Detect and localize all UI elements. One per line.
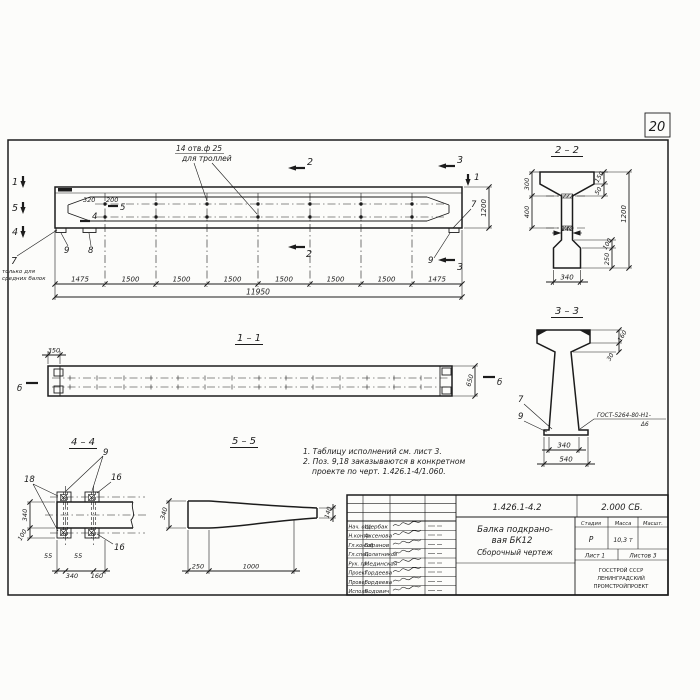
section-5-5-title: 5 – 5: [232, 436, 256, 447]
dim-300: 300: [523, 178, 531, 190]
pos9-label: 9: [64, 246, 69, 256]
svg-text:1500: 1500: [327, 276, 345, 284]
section-2-2-title: 2 – 2: [555, 145, 579, 156]
dim-340: 340: [557, 442, 571, 450]
section-3-3: 3 – 3 160 30 7 9 ГОСТ-5264-80-Н1- Δ6 340…: [518, 306, 666, 467]
notes: 1. Таблицу исполнений см. лист 3. 2. Поз…: [303, 447, 465, 476]
dim-50: 50: [594, 186, 604, 196]
svg-text:Щербак: Щербак: [365, 524, 389, 530]
pos9-label: 9: [518, 412, 523, 422]
svg-text:1475: 1475: [428, 276, 446, 284]
doc-number: 1.426.1-4.2: [492, 503, 541, 513]
svg-text:б: б: [497, 378, 502, 388]
trolley-holes: [103, 202, 413, 218]
svg-text:Баранов: Баранов: [365, 543, 390, 549]
svg-text:2: 2: [307, 157, 313, 168]
svg-text:Аксенова: Аксенова: [364, 534, 393, 540]
pos16-top-label: 16: [111, 473, 122, 483]
doc-code: 2.000 СБ.: [601, 503, 643, 513]
note-line2: 2. Поз. 9,18 заказываются в конкретном: [303, 457, 465, 466]
organization: ГОССТРОЙ СССР ЛЕНИНГРАДСКИЙ ПРОМСТРОЙПРО…: [594, 567, 650, 590]
dim-140: 140: [561, 225, 573, 233]
drawing-title-line3: Сборочный чертеж: [477, 548, 553, 557]
svg-text:Бодович: Бодович: [365, 589, 390, 595]
holes-note-line1: 14 отв.ф 25: [176, 144, 222, 153]
svg-text:1500: 1500: [173, 276, 191, 284]
stage-value: Р: [589, 535, 594, 544]
pos7-right-label: 7: [471, 200, 477, 210]
dim-55b: 55: [74, 552, 82, 560]
dim-height: 1200: [464, 184, 492, 230]
svg-text:Полатников: Полатников: [365, 552, 398, 558]
dim-540: 540: [559, 456, 573, 464]
svg-text:1500: 1500: [122, 276, 140, 284]
drawing-title-line2: вая БК12: [492, 536, 533, 546]
svg-text:1500: 1500: [224, 276, 242, 284]
cut-mark-1-right: 1: [465, 173, 479, 186]
svg-text:Гордеева: Гордеева: [365, 580, 393, 586]
svg-text:5: 5: [120, 203, 125, 213]
elevation-view: 14 отв.ф 25 для троллей 2 2 3 3 1 1: [2, 144, 492, 300]
svg-text:1500: 1500: [378, 276, 396, 284]
dim-55a: 55: [44, 552, 52, 560]
dim-250: 250: [603, 253, 611, 265]
org-line1: ГОССТРОЙ СССР: [599, 567, 643, 574]
cut-mark-3-bottom: 3: [438, 257, 463, 273]
mass-header: Масса: [615, 521, 632, 527]
section-1-1-title: 1 – 1: [237, 333, 261, 344]
svg-text:б: б: [17, 384, 22, 394]
svg-text:5: 5: [12, 203, 18, 214]
svg-text:1: 1: [12, 177, 18, 188]
mass-value: 10,3 т: [613, 537, 633, 544]
svg-text:4: 4: [12, 227, 18, 238]
view-mark-b-left: б: [17, 383, 38, 394]
svg-text:1200: 1200: [480, 199, 488, 217]
dim-1200: 1200: [620, 205, 628, 223]
hole-centerlines: [105, 193, 412, 287]
org-line2: ЛЕНИНГРАДСКИЙ: [597, 575, 645, 582]
cut-mark-2-bottom: 2: [288, 244, 312, 260]
dim-340: 340: [560, 274, 574, 282]
dim-340-horiz: 340: [66, 572, 78, 580]
pos9-label: 9: [103, 448, 108, 458]
pos9-right-label: 9: [428, 256, 433, 266]
cut-mark-4-left: 4: [12, 226, 26, 238]
svg-text:Мединская: Мединская: [365, 561, 398, 567]
svg-text:1475: 1475: [71, 276, 89, 284]
holes-note-line2: для троллей: [181, 154, 232, 163]
pos7-note1: только для: [2, 269, 36, 275]
dim-340-vert: 340: [21, 509, 29, 521]
dim-row: 1475 1500 1500 1500 1500 1500 1500 1475 …: [52, 230, 464, 300]
cut-mark-5-inner: 5: [108, 203, 125, 213]
cut-mark-3-top: 3: [438, 155, 463, 169]
dim-250: 250: [192, 563, 204, 571]
weld-note-line2: Δ6: [640, 422, 649, 428]
section-1-1: 1 – 1 350 650 б б: [17, 333, 502, 399]
pos7-label: 7: [11, 256, 17, 267]
pos7-label: 7: [518, 395, 524, 405]
dim-350: 350: [48, 347, 60, 355]
cut-mark-1-left: 1: [12, 176, 26, 188]
svg-text:1: 1: [474, 173, 480, 183]
cut-mark-2-top: 2: [288, 157, 313, 171]
drawing-title-line1: Балка подкрано-: [477, 525, 553, 535]
sheet-value: Лист 1: [584, 554, 605, 560]
dim-160: 160: [617, 329, 629, 343]
drawing-canvas: 20 14 отв.ф 25 для троллей 2: [0, 0, 700, 700]
view-mark-b-right: б: [483, 377, 502, 388]
dim-200: 200: [106, 196, 118, 204]
section-3-3-title: 3 – 3: [555, 306, 579, 317]
weld-note-line1: ГОСТ-5264-80-Н1-: [597, 413, 651, 419]
scale-header: Масшт.: [643, 521, 663, 527]
svg-text:Гордеева: Гордеева: [365, 571, 393, 577]
svg-text:1500: 1500: [275, 276, 293, 284]
pos7-note2: средних балок: [2, 276, 46, 282]
sheets-value: Листов 3: [628, 554, 656, 560]
pos16-bottom-label: 16: [114, 543, 125, 553]
staff-names: Щербак Аксенова Баранов Полатников Медин…: [364, 524, 398, 595]
dim-1000: 1000: [243, 563, 260, 571]
dim-160-horiz: 160: [91, 572, 103, 580]
section-4-4-title: 4 – 4: [71, 437, 95, 448]
hole-cross-marks: [70, 376, 421, 390]
svg-text:2: 2: [306, 249, 312, 260]
svg-text:3: 3: [457, 155, 463, 166]
org-line3: ПРОМСТРОЙПРОЕКТ: [594, 583, 650, 590]
pos8-label: 8: [88, 246, 94, 256]
cut-mark-5-left: 5: [12, 202, 26, 214]
note-line3: проекте по черт. 1.426.1-4/1.060.: [312, 467, 446, 476]
note-line1: 1. Таблицу исполнений см. лист 3.: [303, 447, 442, 456]
dim-320: 320: [83, 196, 95, 204]
cut-mark-4-inner: 4: [80, 212, 97, 222]
title-block: 1.426.1-4.2 2.000 СБ. Балка подкрано- ва…: [347, 495, 668, 595]
sheet-number: 20: [649, 120, 666, 135]
svg-text:4: 4: [92, 212, 97, 222]
section-2-2: 2 – 2 300 400 150 50 1200: [523, 145, 632, 285]
drawing-sheet: 20 14 отв.ф 25 для троллей 2: [0, 0, 700, 700]
pos18-label: 18: [24, 475, 35, 485]
dim-total: 11950: [246, 288, 270, 297]
stage-header: Стадия: [581, 521, 601, 527]
dim-400: 400: [523, 206, 531, 218]
dim-30: 30: [606, 352, 616, 362]
dim-340: 340: [159, 506, 170, 520]
dim-650: 650: [465, 373, 476, 387]
section-4-4: 4 – 4 9 18 16 16 340: [17, 437, 148, 580]
dim-100-vert: 100: [17, 528, 29, 542]
